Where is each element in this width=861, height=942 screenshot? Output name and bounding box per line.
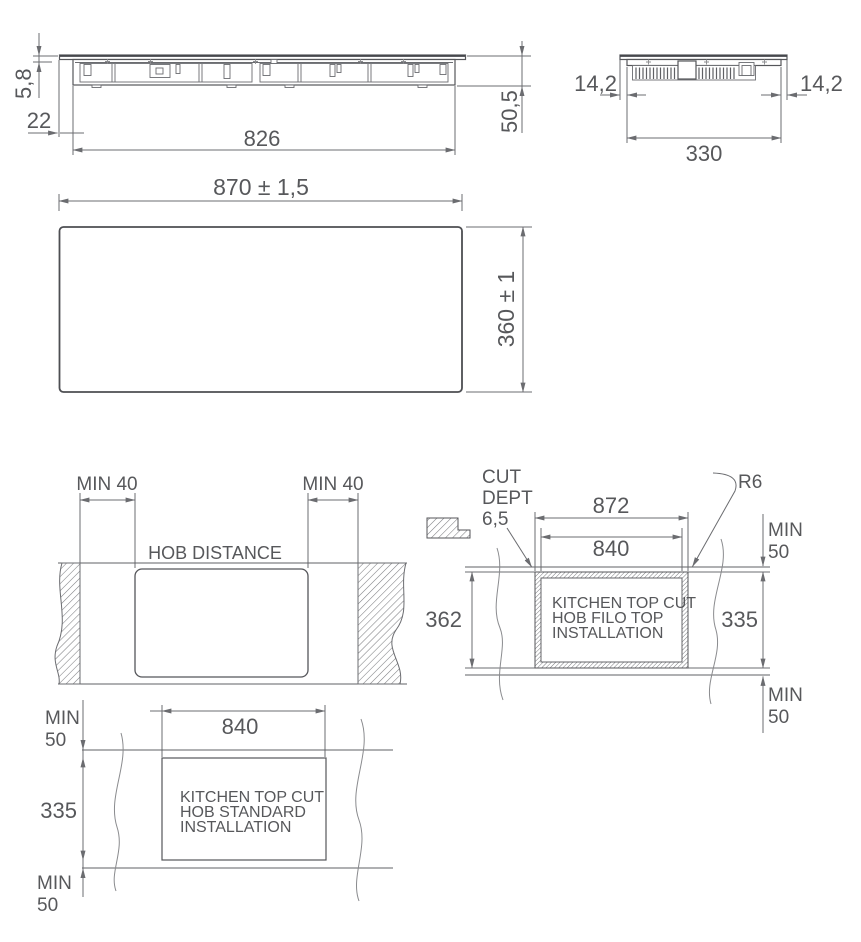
glass-outline-top [60, 227, 463, 392]
dim-inset-right: 14,2 [800, 71, 843, 96]
dim-overall-depth: 360 ± 1 [493, 271, 519, 348]
cut-depth-note-1: CUT [482, 467, 521, 488]
dim-std-cut-width: 840 [222, 714, 259, 739]
filo-top-cut-diagram: CUT DEPT 6,5 R6 872 840 362 335 MIN 50 M… [425, 467, 803, 733]
filo-label-3: INSTALLATION [552, 625, 663, 642]
standard-cut-diagram: MIN 50 840 335 MIN 50 KITCHEN TOP CUT HO… [37, 700, 393, 916]
corner-radius-label: R6 [738, 472, 762, 493]
dim-overall-width: 870 ± 1,5 [213, 174, 309, 200]
min-clearance-top-2: 50 [768, 542, 789, 563]
dim-outer-cut-width: 872 [593, 493, 630, 518]
dim-inset-left: 14,2 [574, 71, 617, 96]
break-line-right-std [356, 719, 364, 901]
std-min-top-1: MIN [45, 708, 80, 729]
dim-std-cut-depth: 335 [40, 798, 77, 823]
min-clearance-bottom-1: MIN [768, 685, 803, 706]
dim-body-depth: 330 [686, 141, 723, 166]
dim-min-distance-right: MIN 40 [302, 474, 363, 495]
hob-footprint [135, 569, 308, 677]
hob-distance-title: HOB DISTANCE [148, 543, 282, 563]
std-label-3: INSTALLATION [180, 819, 291, 836]
worktop-edge-hatch-right [358, 563, 406, 684]
worktop-edge-hatch-left [55, 563, 80, 684]
hob-end-view: 14,2 14,2 330 [574, 55, 843, 166]
min-clearance-top-1: MIN [768, 520, 803, 541]
cut-depth-note-3: 6,5 [482, 509, 508, 530]
dim-glass-thickness: 5,8 [11, 68, 36, 99]
dim-outer-cut-depth: 362 [425, 607, 462, 632]
dim-min-distance-left: MIN 40 [76, 474, 137, 495]
installation-drawing-page: 5,8 22 826 50,5 14,2 14,2 330 [0, 0, 861, 942]
cut-depth-profile [427, 518, 470, 538]
hob-top-view: 870 ± 1,5 360 ± 1 [59, 174, 532, 392]
technical-drawing: 5,8 22 826 50,5 14,2 14,2 330 [0, 0, 861, 942]
min-clearance-bottom-2: 50 [768, 707, 789, 728]
dim-inner-cut-width: 840 [593, 536, 630, 561]
hob-side-view: 5,8 22 826 50,5 [11, 33, 531, 155]
dim-body-width: 826 [244, 126, 281, 151]
std-min-top-2: 50 [45, 730, 66, 751]
std-min-bottom-2: 50 [37, 895, 58, 916]
dim-edge-overhang: 22 [27, 108, 51, 133]
terminal-box-inner [742, 66, 751, 76]
fixing-point-marks [105, 59, 406, 64]
hob-distance-diagram: MIN 40 MIN 40 HOB DISTANCE [55, 474, 407, 684]
cut-depth-note-2: DEPT [482, 488, 533, 509]
break-line-left [496, 548, 503, 700]
vent-center-box [678, 61, 696, 79]
frame-end [627, 60, 781, 66]
break-line-left-std [114, 733, 123, 891]
dim-inner-cut-depth: 335 [721, 607, 758, 632]
dim-total-height: 50,5 [497, 90, 522, 133]
std-min-bottom-1: MIN [37, 873, 72, 894]
